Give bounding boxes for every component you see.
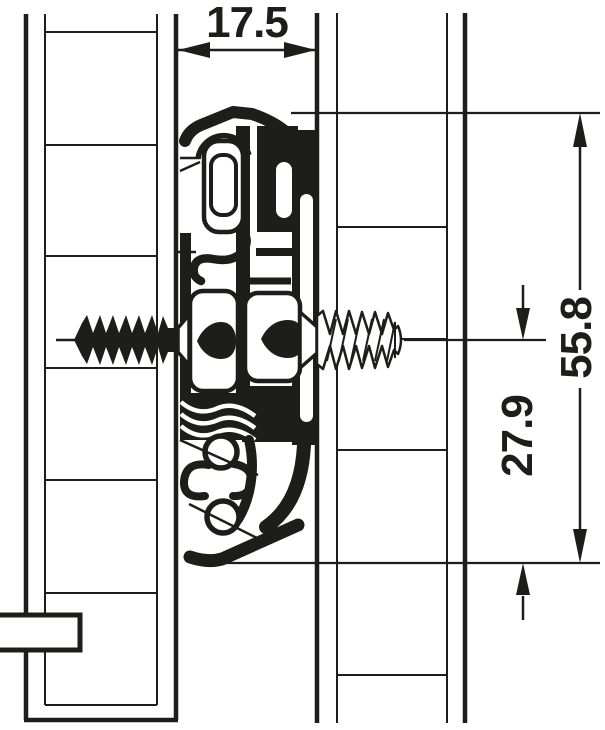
dim-axis-height-label: 27.9 <box>495 361 541 511</box>
ball-bearing-bottom <box>207 501 239 533</box>
right-panel <box>317 13 465 723</box>
dim-total-height-label: 55.8 <box>554 263 600 413</box>
screw-heads <box>178 291 317 391</box>
bottom-panel-tongue <box>0 615 80 650</box>
technical-drawing: 17.5 55.8 27.9 <box>0 0 605 730</box>
wood-screw <box>56 315 178 365</box>
dim-width-label: 17.5 <box>172 0 322 46</box>
